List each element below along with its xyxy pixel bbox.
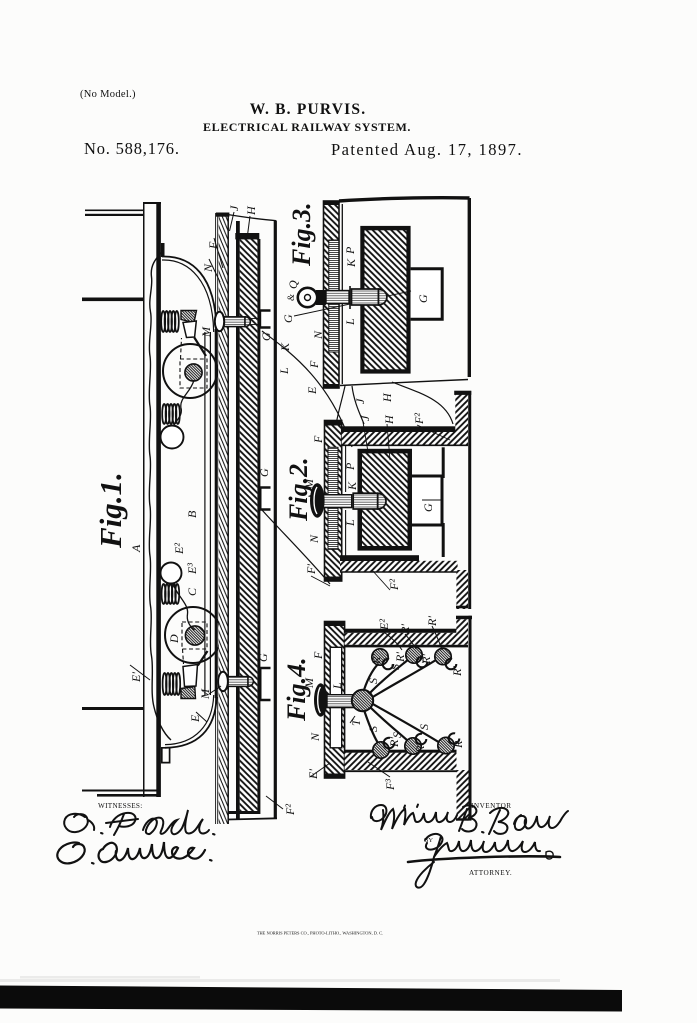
svg-text:L: L <box>277 367 291 375</box>
svg-text:F³: F³ <box>383 779 397 791</box>
svg-text:R': R' <box>413 743 427 754</box>
svg-text:A: A <box>129 544 143 553</box>
svg-text:K: K <box>345 481 359 491</box>
svg-text:W. B. PURVIS.: W. B. PURVIS. <box>250 101 367 118</box>
svg-text:WITNESSES:: WITNESSES: <box>98 802 143 810</box>
svg-text:R': R' <box>450 666 464 677</box>
svg-text:K: K <box>344 258 358 268</box>
svg-text:P: P <box>343 462 357 471</box>
svg-text:E²: E² <box>377 619 391 631</box>
svg-text:Patented Aug. 17, 1897.: Patented Aug. 17, 1897. <box>331 140 523 159</box>
svg-text:J: J <box>353 398 367 404</box>
svg-text:R': R' <box>419 654 433 665</box>
svg-text:F: F <box>307 360 321 369</box>
svg-text:F': F' <box>304 564 318 575</box>
svg-text:ELECTRICAL RAILWAY SYSTEM.: ELECTRICAL RAILWAY SYSTEM. <box>203 120 411 134</box>
svg-text:M: M <box>302 677 316 689</box>
svg-text:F: F <box>311 435 325 444</box>
svg-text:N: N <box>201 263 215 273</box>
svg-text:N: N <box>307 534 321 544</box>
svg-text:C: C <box>185 587 199 596</box>
svg-text:H: H <box>244 205 258 216</box>
svg-text:H: H <box>382 414 396 425</box>
svg-text:BY: BY <box>424 837 433 844</box>
svg-text:G: G <box>281 314 295 323</box>
svg-text:R': R' <box>387 737 401 748</box>
svg-text:F²: F² <box>412 413 426 425</box>
svg-text:E': E' <box>129 672 143 683</box>
svg-text:G: G <box>421 503 435 512</box>
svg-text:S: S <box>366 678 380 684</box>
svg-text:R: R <box>451 740 465 749</box>
svg-text:E³: E³ <box>185 563 199 575</box>
svg-text:G: G <box>256 653 270 662</box>
svg-text:Fig.1.: Fig.1. <box>93 472 128 549</box>
svg-text:L: L <box>343 318 357 326</box>
svg-text:E²: E² <box>172 543 186 555</box>
svg-text:(No Model.): (No Model.) <box>80 89 136 100</box>
svg-text:ATTORNEY.: ATTORNEY. <box>469 869 512 877</box>
svg-text:No. 588,176.: No. 588,176. <box>84 139 180 158</box>
svg-text:F²: F² <box>283 804 297 816</box>
svg-text:S: S <box>388 664 402 670</box>
svg-text:R': R' <box>425 616 439 627</box>
svg-text:Fig.3.: Fig.3. <box>287 202 316 267</box>
svg-text:S: S <box>366 726 380 732</box>
svg-text:H: H <box>380 392 394 403</box>
svg-text:F: F <box>206 241 220 250</box>
svg-text:Fig.4.: Fig.4. <box>282 657 311 722</box>
svg-text:G: G <box>257 468 271 477</box>
svg-text:P: P <box>343 246 357 255</box>
svg-text:R': R' <box>393 652 407 663</box>
svg-text:R': R' <box>369 654 383 665</box>
svg-text:Q: Q <box>286 280 300 289</box>
svg-text:L: L <box>330 682 344 690</box>
svg-text:K: K <box>278 342 292 352</box>
svg-text:&: & <box>286 294 296 301</box>
svg-text:R': R' <box>398 624 412 635</box>
svg-text:E: E <box>305 386 319 395</box>
svg-text:E: E <box>188 714 202 723</box>
svg-text:N: N <box>308 732 322 742</box>
svg-text:S: S <box>417 724 431 730</box>
svg-text:J: J <box>358 415 372 421</box>
svg-text:F: F <box>311 651 325 660</box>
svg-text:B: B <box>185 510 199 518</box>
svg-text:M: M <box>198 688 212 700</box>
svg-text:G: G <box>416 294 430 303</box>
svg-text:D: D <box>167 634 181 644</box>
svg-text:E': E' <box>306 769 320 780</box>
svg-text:M: M <box>199 326 213 338</box>
svg-text:J: J <box>227 205 241 211</box>
svg-text:M: M <box>302 478 316 490</box>
svg-text:N: N <box>311 330 325 340</box>
svg-text:L: L <box>343 519 357 527</box>
